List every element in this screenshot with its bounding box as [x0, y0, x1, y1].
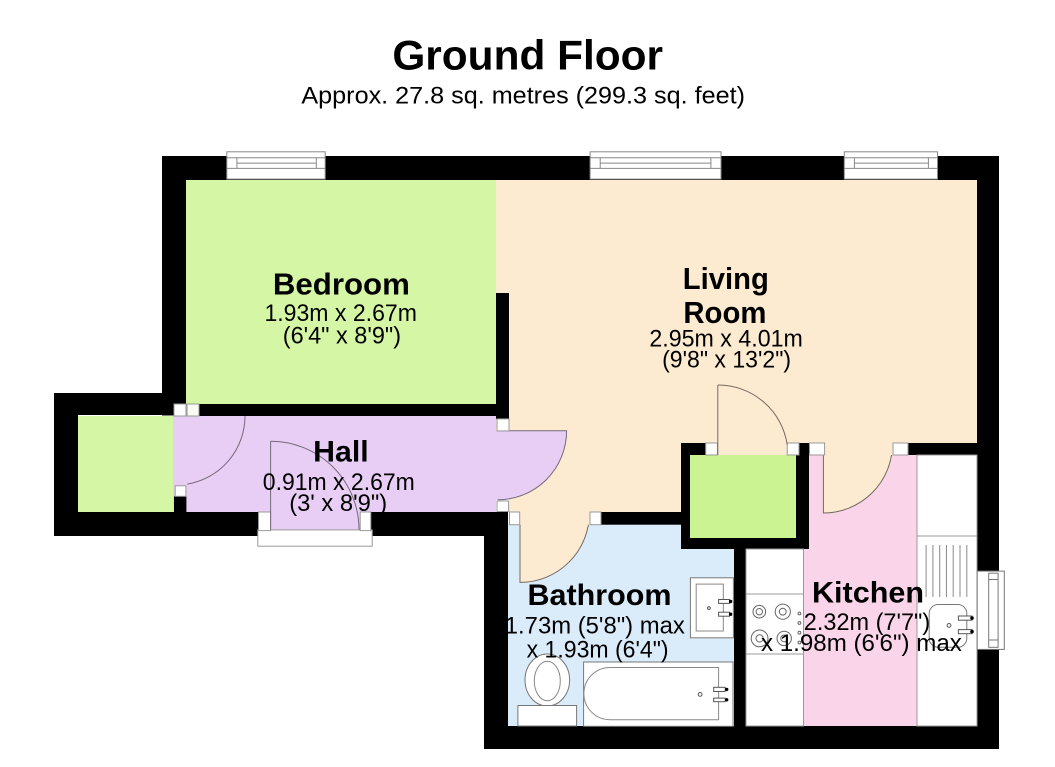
- svg-text:Bedroom: Bedroom: [273, 267, 410, 302]
- svg-text:Approx. 27.8 sq. metres (299.3: Approx. 27.8 sq. metres (299.3 sq. feet): [301, 83, 745, 110]
- svg-text:1.73m (5'8") max: 1.73m (5'8") max: [505, 612, 685, 639]
- svg-text:Living: Living: [683, 261, 769, 296]
- svg-text:(9'8" x 13'2"): (9'8" x 13'2"): [662, 346, 791, 373]
- svg-text:Hall: Hall: [313, 435, 369, 468]
- svg-text:x 1.98m (6'6") max: x 1.98m (6'6") max: [761, 630, 962, 657]
- svg-text:(3' x 8'9"): (3' x 8'9"): [289, 490, 387, 517]
- svg-text:Bathroom: Bathroom: [528, 579, 672, 612]
- svg-text:(6'4" x 8'9"): (6'4" x 8'9"): [283, 323, 401, 350]
- svg-text:x 1.93m (6'4"): x 1.93m (6'4"): [527, 637, 669, 664]
- svg-text:Kitchen: Kitchen: [812, 576, 924, 609]
- svg-text:Ground Floor: Ground Floor: [392, 32, 663, 79]
